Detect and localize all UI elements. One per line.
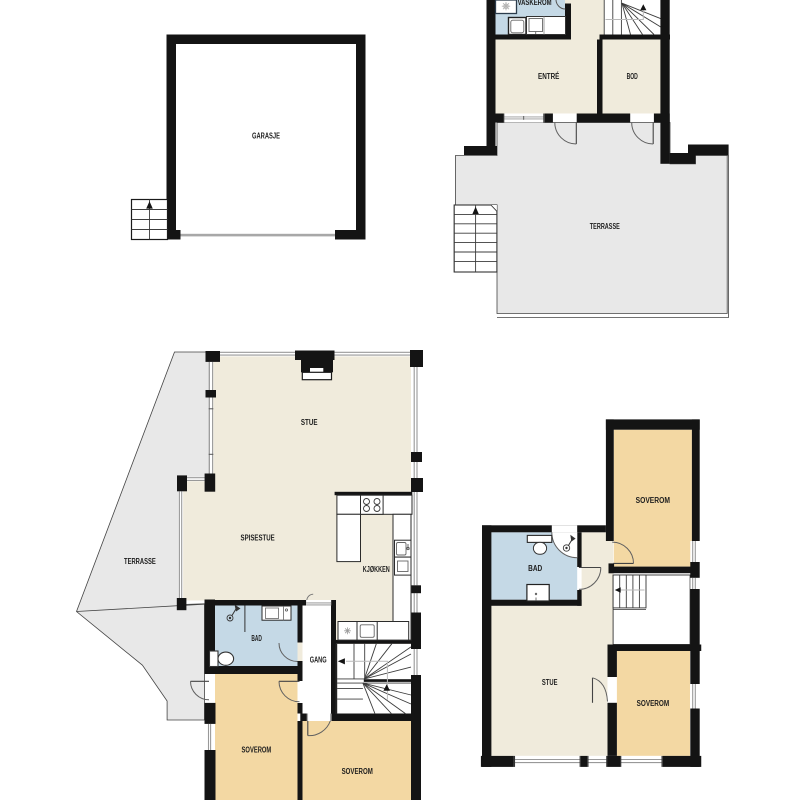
svg-text:BOD: BOD <box>627 72 638 81</box>
svg-text:BAD: BAD <box>528 564 542 573</box>
svg-text:SOVEROM: SOVEROM <box>242 746 272 755</box>
svg-text:GARASJE: GARASJE <box>252 132 280 141</box>
svg-text:ENTRÉ: ENTRÉ <box>538 72 559 81</box>
svg-text:GANG: GANG <box>310 656 327 665</box>
svg-text:BAD: BAD <box>251 634 262 643</box>
svg-text:VASKEROM: VASKEROM <box>518 0 552 7</box>
svg-text:SOVEROM: SOVEROM <box>637 699 670 708</box>
svg-text:SPISESTUE: SPISESTUE <box>241 534 275 543</box>
svg-text:STUE: STUE <box>301 418 318 427</box>
svg-text:SOVEROM: SOVEROM <box>636 496 670 505</box>
svg-text:TERRASSE: TERRASSE <box>590 222 620 231</box>
svg-text:STUE: STUE <box>542 678 558 687</box>
svg-text:TERRASSE: TERRASSE <box>124 557 156 566</box>
svg-text:SOVEROM: SOVEROM <box>342 767 373 776</box>
svg-text:KJØKKEN: KJØKKEN <box>363 565 390 574</box>
